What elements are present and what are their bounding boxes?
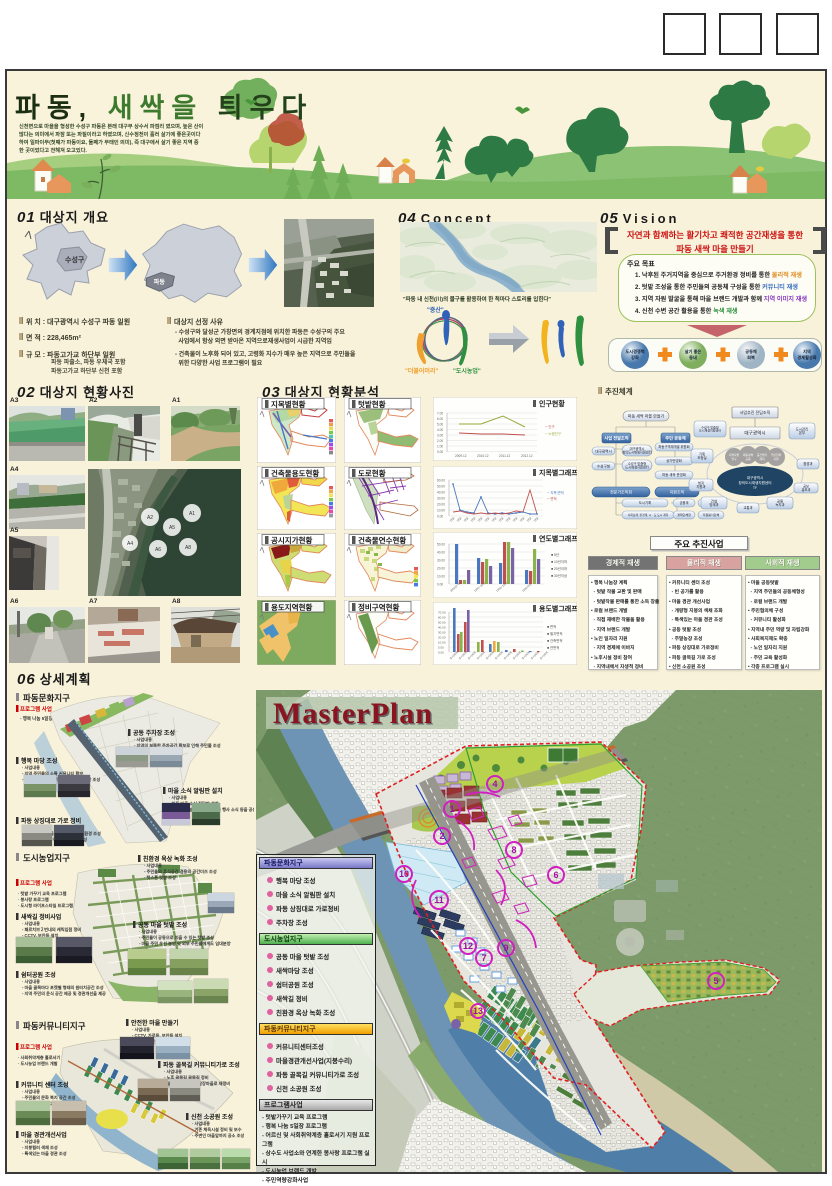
svg-text:신천변으로 마을을 형성한 수성구 파동은 본래 대구부 상: 신천변으로 마을을 형성한 수성구 파동은 본래 대구부 상수서 파점리 였으며… xyxy=(19,122,204,130)
svg-text:신천 소공원 조성: 신천 소공원 조성 xyxy=(191,1113,233,1121)
svg-text:· 도시농업 브랜드 개발: · 도시농업 브랜드 개발 xyxy=(18,1060,58,1067)
svg-text:─ 인구: ─ 인구 xyxy=(544,424,555,429)
svg-text:건축물연수현황: 건축물연수현황 xyxy=(358,535,406,545)
svg-text:4: 4 xyxy=(492,779,497,789)
svg-text:40.00: 40.00 xyxy=(437,491,445,495)
svg-text:파동, 새싹을 틔우다: 파동, 새싹을 틔우다 xyxy=(15,93,313,123)
svg-text:■ 면적: ■ 면적 xyxy=(547,624,556,629)
svg-text:지원조직: 지원조직 xyxy=(670,488,685,494)
svg-text:- 패르치브２번내의 캐릭입점 정비: - 패르치브２번내의 캐릭입점 정비 xyxy=(22,926,81,933)
svg-text:계획: 계획 xyxy=(759,457,765,461)
svg-text:13: 13 xyxy=(473,1006,483,1016)
svg-text:2010.12: 2010.12 xyxy=(477,454,489,458)
svg-text:■ 10년이하: ■ 10년이하 xyxy=(551,559,568,564)
svg-text:A4: A4 xyxy=(127,541,133,547)
svg-text:도시농업지구: 도시농업지구 xyxy=(23,853,70,863)
svg-text:파동문화지구: 파동문화지구 xyxy=(23,693,70,703)
svg-text:2011.12: 2011.12 xyxy=(499,454,511,458)
svg-text:9: 9 xyxy=(503,943,508,953)
svg-text:· 사업내용: · 사업내용 xyxy=(164,1068,182,1075)
svg-text:A2: A2 xyxy=(147,515,153,521)
svg-text:회복: 회복 xyxy=(747,354,755,361)
svg-text:방재과: 방재과 xyxy=(709,502,718,507)
svg-text:친환경 옥상 녹화 조성: 친환경 옥상 녹화 조성 xyxy=(143,855,198,863)
svg-text:A8: A8 xyxy=(185,545,191,551)
svg-text:프로그램 사업: 프로그램 사업 xyxy=(20,1043,52,1051)
svg-text:파동커뮤니티지구: 파동커뮤니티지구 xyxy=(23,1021,86,1031)
svg-text:용도별그래프: 용도별그래프 xyxy=(539,604,577,613)
svg-text:─ 지목,면적: ─ 지목,면적 xyxy=(546,490,564,495)
svg-text:주민 공동체: 주민 공동체 xyxy=(665,434,686,441)
svg-text:· 사업내용: · 사업내용 xyxy=(144,862,162,869)
svg-text:· 사업내용: · 사업내용 xyxy=(169,794,187,801)
svg-text:- 주민들의 문화 복지 공간 조성: - 주민들의 문화 복지 공간 조성 xyxy=(22,1094,76,1101)
svg-text:· 사업내용: · 사업내용 xyxy=(22,978,40,985)
svg-text:지역: 지역 xyxy=(803,348,811,355)
svg-text:파동 상징대로 가로 정비: 파동 상징대로 가로 정비 xyxy=(21,817,81,825)
svg-text:수성구: 수성구 xyxy=(65,255,85,264)
svg-text:· 사업내용: · 사업내용 xyxy=(22,1138,40,1145)
svg-text:10.00: 10.00 xyxy=(437,509,445,513)
svg-text:■ 연면적: ■ 연면적 xyxy=(547,645,559,650)
svg-text:도시기획: 도시기획 xyxy=(639,500,651,505)
svg-text:- 마을 골목마다 포켓별 형태의 원터치공간 조성: - 마을 골목마다 포켓별 형태의 원터치공간 조성 xyxy=(22,984,104,991)
svg-text:0.00: 0.00 xyxy=(438,651,444,655)
svg-text:새싹길 정비사업: 새싹길 정비사업 xyxy=(21,913,61,921)
svg-text:대구광역시: 대구광역시 xyxy=(744,430,765,437)
svg-text:지원: 지원 xyxy=(773,457,779,461)
svg-text:70.00: 70.00 xyxy=(438,611,446,615)
svg-text:A1: A1 xyxy=(189,511,195,517)
svg-text:파동 새싹 마을 만들기: 파동 새싹 마을 만들기 xyxy=(628,412,665,418)
svg-text:정비구역현황: 정비구역현황 xyxy=(358,602,399,612)
svg-text:■ 필지면적: ■ 필지면적 xyxy=(547,631,562,636)
svg-text:TF: TF xyxy=(753,486,757,490)
svg-text:하여 일파이무(첫째가 파동이요, 둘째가 무태인 의미),: 하여 일파이무(첫째가 파동이요, 둘째가 무태인 의미), 즉 대구에서 살기… xyxy=(19,138,199,146)
svg-text:· 사업내용: · 사업내용 xyxy=(139,928,157,935)
svg-text:A6: A6 xyxy=(155,547,161,553)
svg-text:인구현황: 인구현황 xyxy=(539,399,565,408)
svg-text:2009.12: 2009.12 xyxy=(455,454,467,458)
svg-text:사업추진 전담조직: 사업추진 전담조직 xyxy=(740,409,771,415)
svg-text:· 사업내용: · 사업내용 xyxy=(22,764,40,771)
svg-text:환경과: 환경과 xyxy=(803,461,812,466)
svg-text:파동 골목길 커뮤니티가로 조성: 파동 골목길 커뮤니티가로 조성 xyxy=(163,1061,240,1069)
svg-text:4.00: 4.00 xyxy=(437,428,443,432)
svg-text:3.00: 3.00 xyxy=(437,434,443,438)
svg-text:- 텃스톤 텃밭 조성: - 텃스톤 텃밭 조성 xyxy=(144,874,176,881)
svg-text:■ 건축면적: ■ 건축면적 xyxy=(547,638,562,643)
svg-text:1.00: 1.00 xyxy=(437,445,443,449)
svg-text:2012.12: 2012.12 xyxy=(521,454,533,458)
svg-text:- 주민들의 휴식공간 겸용의 공간미즈 조성: - 주민들의 휴식공간 겸용의 공간미즈 조성 xyxy=(144,868,217,875)
svg-text:2.00: 2.00 xyxy=(437,439,443,443)
svg-text:8: 8 xyxy=(511,845,516,855)
svg-text:30.00: 30.00 xyxy=(437,497,445,501)
svg-text:창의도시재생지원센터: 창의도시재생지원센터 xyxy=(622,449,651,454)
svg-text:도시재생지원센터: 도시재생지원센터 xyxy=(699,428,721,433)
svg-text:한 곳이었다고 전해져 오고있다.: 한 곳이었다고 전해져 오고있다. xyxy=(19,146,87,154)
svg-text:공동 주차장 조성: 공동 주차장 조성 xyxy=(133,729,175,737)
svg-text:수성구청: 수성구청 xyxy=(597,463,610,468)
svg-text:30.00: 30.00 xyxy=(437,559,445,563)
svg-text:동네: 동네 xyxy=(689,354,697,361)
svg-text:상가번영회: 상가번영회 xyxy=(666,458,682,463)
svg-text:─ 노령인구: ─ 노령인구 xyxy=(544,431,561,436)
svg-text:- 마을 주민 우선 분양 및 외부 주민들에게도 임대분양: - 마을 주민 우선 분양 및 외부 주민들에게도 임대분양 xyxy=(139,940,231,947)
svg-text:연도별그래프: 연도별그래프 xyxy=(539,534,577,543)
svg-text:A5: A5 xyxy=(169,525,175,531)
svg-text:20.00: 20.00 xyxy=(437,567,445,571)
svg-text:파동 새싹 운영회: 파동 새싹 운영회 xyxy=(662,472,686,477)
svg-text:쉼터공원 조성: 쉼터공원 조성 xyxy=(21,971,56,979)
svg-text:금융계: 금융계 xyxy=(680,500,689,505)
svg-text:7.00: 7.00 xyxy=(437,412,443,416)
svg-text:0.00: 0.00 xyxy=(437,583,443,587)
svg-text:10: 10 xyxy=(399,869,409,879)
svg-text:· 사업내용: · 사업내용 xyxy=(22,1088,40,1095)
svg-text:공동체: 공동체 xyxy=(745,348,757,355)
svg-text:- 지붕컬러 색채 조성: - 지붕컬러 색채 조성 xyxy=(22,1144,58,1151)
svg-text:연구: 연구 xyxy=(731,457,737,461)
svg-text:■ 20년이하: ■ 20년이하 xyxy=(551,566,568,571)
svg-text:파동: 파동 xyxy=(154,278,166,286)
svg-text:30.00: 30.00 xyxy=(438,631,446,635)
svg-text:0.00: 0.00 xyxy=(437,515,443,519)
svg-text:프로그램 사업: 프로그램 사업 xyxy=(20,879,52,887)
svg-text:도시경쟁력: 도시경쟁력 xyxy=(625,348,644,355)
svg-text:- 주변인 마을앞까지 공소 조성: - 주변인 마을앞까지 공소 조성 xyxy=(192,1132,244,1139)
svg-text:- 지역 주민의 윤식 공간 제공 및 경관개선을 제공: - 지역 주민의 윤식 공간 제공 및 경관개선을 제공 xyxy=(22,990,106,997)
svg-text:공동 마을 텃밭 조성: 공동 마을 텃밭 조성 xyxy=(138,921,187,929)
svg-text:본부: 본부 xyxy=(799,430,805,435)
svg-text:· 사업내용: · 사업내용 xyxy=(192,1120,210,1127)
svg-text:자원봉사단체: 자원봉사단체 xyxy=(703,512,720,517)
svg-text:용도지역현황: 용도지역현황 xyxy=(271,602,312,612)
svg-text:12: 12 xyxy=(463,941,473,951)
svg-text:7: 7 xyxy=(481,953,486,963)
svg-text:50.00: 50.00 xyxy=(437,485,445,489)
svg-text:행복 마당 조성: 행복 마당 조성 xyxy=(21,757,57,765)
svg-text:파동구역재개발 위원회: 파동구역재개발 위원회 xyxy=(658,444,689,449)
svg-text:─ 면적: ─ 면적 xyxy=(546,496,557,501)
svg-text:녹지과: 녹지과 xyxy=(775,502,784,507)
svg-text:· 봉사랑 프로그램: · 봉사랑 프로그램 xyxy=(18,896,49,903)
svg-text:살기 좋은: 살기 좋은 xyxy=(685,348,702,355)
svg-text:프로그램 사업: 프로그램 사업 xyxy=(20,705,52,713)
svg-text:■ 30년이상: ■ 30년이상 xyxy=(551,573,567,578)
svg-text:40.00: 40.00 xyxy=(438,626,446,630)
svg-text:지원과: 지원과 xyxy=(696,484,705,489)
svg-text:대구광역시: 대구광역시 xyxy=(747,475,764,480)
svg-text:강화: 강화 xyxy=(631,354,639,361)
svg-text:마을 소식 알림판 설치: 마을 소식 알림판 설치 xyxy=(168,787,223,795)
svg-text:"더불어머리": "더불어머리" xyxy=(405,367,438,375)
svg-text:경제단체장: 경제단체장 xyxy=(677,512,691,517)
svg-text:· 도시형 라이프스타일 프로그램: · 도시형 라이프스타일 프로그램 xyxy=(18,902,73,909)
svg-text:5.00: 5.00 xyxy=(437,423,443,427)
svg-text:"도시농업": "도시농업" xyxy=(453,367,481,375)
svg-text:사업 전달조직: 사업 전달조직 xyxy=(604,434,628,441)
svg-text:40.00: 40.00 xyxy=(437,551,445,555)
svg-text:"중산": "중산" xyxy=(427,306,444,314)
svg-text:많다는 의미에서 파잠 또는 파질이라고 하였으며, 신수정: 많다는 의미에서 파잠 또는 파질이라고 하였으며, 신수정천이 흘러 살기에 … xyxy=(19,130,201,138)
svg-text:5.00: 5.00 xyxy=(438,646,444,650)
svg-text:20.00: 20.00 xyxy=(438,636,446,640)
svg-text:· 사업내용: · 사업내용 xyxy=(134,736,152,743)
svg-text:5: 5 xyxy=(713,976,718,986)
svg-text:건축물용도현황: 건축물용도현황 xyxy=(271,468,319,478)
svg-text:도로현황: 도로현황 xyxy=(358,468,386,478)
svg-text:대구광역시: 대구광역시 xyxy=(595,448,612,453)
svg-text:1: 1 xyxy=(449,804,454,814)
svg-text:50.00: 50.00 xyxy=(437,543,445,547)
svg-text:6.00: 6.00 xyxy=(437,417,443,421)
svg-text:공시지가현황: 공시지가현황 xyxy=(271,535,312,545)
svg-text:0.00: 0.00 xyxy=(437,450,443,454)
svg-text:· 사업내용: · 사업내용 xyxy=(22,920,40,927)
svg-text:6: 6 xyxy=(553,870,558,880)
svg-text:50.00: 50.00 xyxy=(438,621,446,625)
svg-text:커뮤니티 센터 조성: 커뮤니티 센터 조성 xyxy=(21,1081,69,1089)
svg-text:교육: 교육 xyxy=(745,457,751,461)
svg-text:60.00: 60.00 xyxy=(437,479,445,483)
svg-text:마을 경관개선사업: 마을 경관개선사업 xyxy=(21,1131,67,1139)
svg-text:10.00: 10.00 xyxy=(438,641,446,645)
svg-text:2: 2 xyxy=(439,831,444,841)
svg-text:지목별현황: 지목별현황 xyxy=(271,399,306,409)
svg-text:텃밭현황: 텃밭현황 xyxy=(358,399,386,409)
svg-text:경제활성화: 경제활성화 xyxy=(797,354,816,361)
svg-text:11: 11 xyxy=(434,895,444,905)
svg-text:· 텃밭 가꾸기 교육 프로그램: · 텃밭 가꾸기 교육 프로그램 xyxy=(18,890,67,897)
svg-text:- 특색있는 마을 경관 조성: - 특색있는 마을 경관 조성 xyxy=(22,1150,67,1157)
svg-text:조정실: 조정실 xyxy=(697,455,706,460)
svg-text:홍보과: 홍보과 xyxy=(802,487,811,492)
svg-text:10.00: 10.00 xyxy=(437,575,445,579)
svg-text:창의도시재생지원센터: 창의도시재생지원센터 xyxy=(738,480,771,485)
svg-text:사회보계, 환경계, 시 · 도 도시 계획: 사회보계, 환경계, 시 · 도 도시 계획 xyxy=(628,513,669,517)
svg-text:60.00: 60.00 xyxy=(438,616,446,620)
svg-text:전문가조직회: 전문가조직회 xyxy=(610,488,632,494)
svg-text:20.00: 20.00 xyxy=(437,503,445,507)
svg-text:교통과: 교통과 xyxy=(743,505,752,510)
svg-text:· 사업내용: · 사업내용 xyxy=(132,1026,150,1033)
svg-text:안전한 마을 만들기: 안전한 마을 만들기 xyxy=(131,1019,179,1027)
svg-text:- 기존 체육시설 정비 및 보수: - 기존 체육시설 정비 및 보수 xyxy=(192,1126,242,1133)
svg-text:- 주민들이 공동으로 지을 수 있는 텃밭 조성: - 주민들이 공동으로 지을 수 있는 텃밭 조성 xyxy=(139,934,214,941)
svg-text:지목별그래프: 지목별그래프 xyxy=(539,468,577,477)
svg-text:■ 5년: ■ 5년 xyxy=(551,552,559,557)
svg-text:도시재생지원센터: 도시재생지원센터 xyxy=(625,464,649,469)
